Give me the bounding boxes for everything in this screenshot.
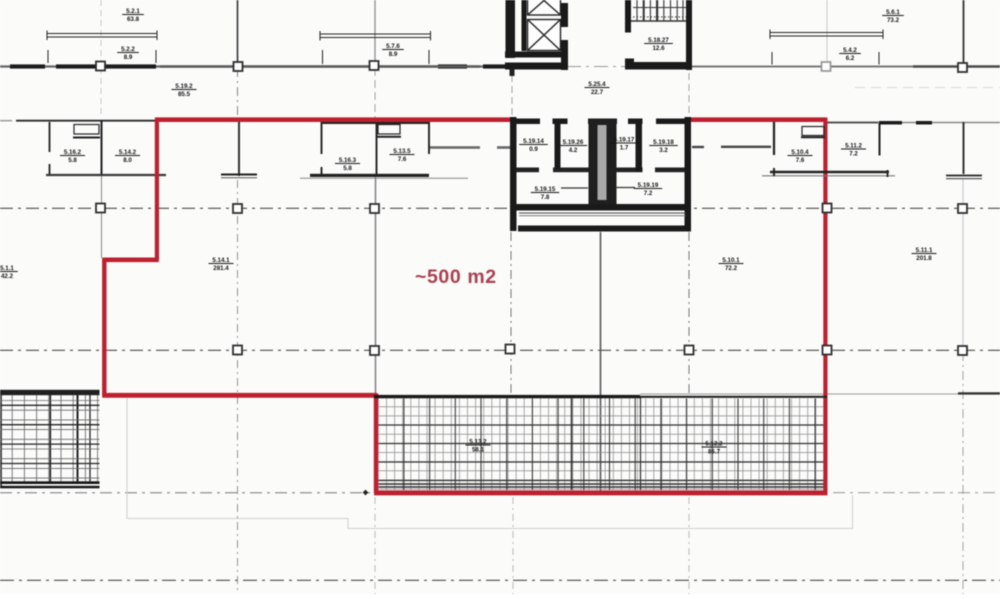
svg-text:5.8: 5.8 (68, 157, 77, 164)
svg-text:5.19.2: 5.19.2 (175, 83, 193, 90)
svg-text:8.0: 8.0 (123, 157, 132, 164)
svg-text:8.9: 8.9 (389, 51, 398, 58)
svg-text:~500 m2: ~500 m2 (415, 266, 497, 288)
svg-text:7.2: 7.2 (644, 190, 653, 197)
svg-text:6.2: 6.2 (846, 55, 855, 62)
svg-text:7.6: 7.6 (796, 157, 805, 164)
svg-text:12.6: 12.6 (652, 45, 665, 52)
svg-text:73.2: 73.2 (887, 17, 900, 24)
svg-text:72.2: 72.2 (725, 265, 738, 272)
svg-text:22.7: 22.7 (591, 89, 604, 96)
svg-text:7.8: 7.8 (541, 194, 550, 201)
svg-text:7.2: 7.2 (849, 150, 858, 157)
svg-text:58.1: 58.1 (472, 446, 485, 453)
svg-text:4.2: 4.2 (569, 147, 578, 154)
svg-text:3.2: 3.2 (659, 147, 668, 154)
svg-text:201.8: 201.8 (916, 255, 932, 262)
svg-text:0.9: 0.9 (529, 146, 538, 153)
svg-text:86.7: 86.7 (708, 448, 721, 455)
svg-text:1.7: 1.7 (620, 144, 629, 151)
svg-text:5.8: 5.8 (343, 165, 352, 172)
svg-text:8.9: 8.9 (124, 54, 133, 61)
svg-text:7.6: 7.6 (398, 156, 407, 163)
svg-text:281.4: 281.4 (213, 265, 229, 272)
svg-text:85.5: 85.5 (178, 91, 191, 98)
svg-text:63.8: 63.8 (127, 16, 140, 23)
svg-text:5.25.4: 5.25.4 (588, 81, 606, 88)
svg-text:42.2: 42.2 (1, 273, 14, 280)
